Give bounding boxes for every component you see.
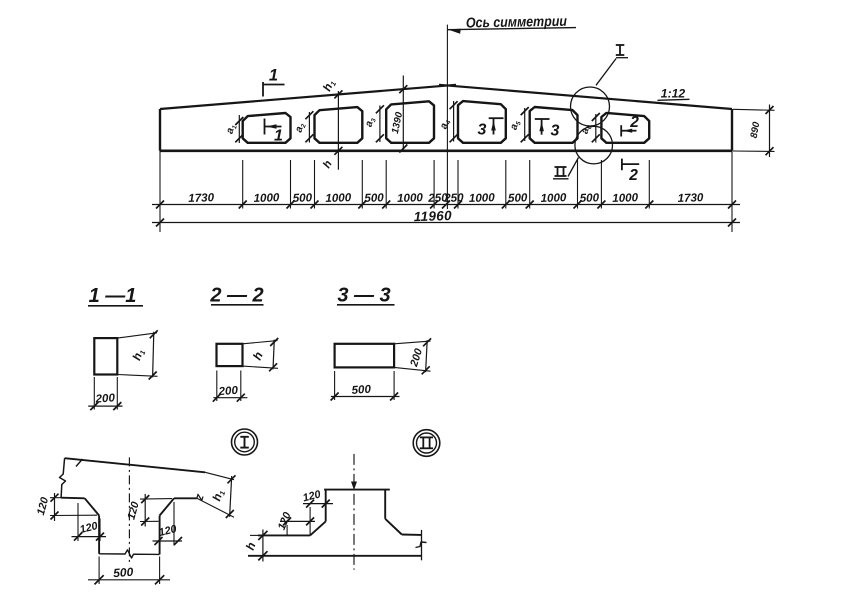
svg-text:120: 120 bbox=[125, 500, 141, 521]
svg-text:h1: h1 bbox=[211, 488, 227, 503]
svg-text:500: 500 bbox=[508, 191, 528, 205]
svg-text:1000: 1000 bbox=[540, 191, 567, 205]
svg-text:250: 250 bbox=[443, 191, 464, 205]
svg-text:Ось симметрии: Ось симметрии bbox=[466, 14, 568, 32]
svg-text:a4: a4 bbox=[438, 118, 452, 130]
svg-text:h: h bbox=[243, 540, 259, 552]
svg-text:1000: 1000 bbox=[397, 191, 424, 205]
svg-text:500: 500 bbox=[351, 384, 372, 397]
svg-text:500: 500 bbox=[579, 191, 599, 205]
svg-text:1730: 1730 bbox=[188, 191, 215, 205]
svg-text:3 — 3: 3 — 3 bbox=[337, 285, 390, 307]
svg-text:3: 3 bbox=[551, 123, 560, 140]
svg-text:a3: a3 bbox=[364, 116, 378, 128]
svg-text:1730: 1730 bbox=[677, 191, 704, 205]
svg-text:1000: 1000 bbox=[253, 191, 280, 205]
svg-text:11960: 11960 bbox=[413, 208, 452, 224]
svg-text:1: 1 bbox=[269, 67, 278, 85]
svg-text:2: 2 bbox=[629, 114, 639, 131]
svg-text:h: h bbox=[250, 350, 266, 363]
svg-text:1000: 1000 bbox=[612, 191, 639, 205]
svg-text:500: 500 bbox=[113, 565, 134, 580]
svg-text:1: 1 bbox=[274, 128, 283, 145]
svg-text:120: 120 bbox=[158, 523, 178, 539]
svg-text:890: 890 bbox=[749, 121, 763, 140]
svg-text:2: 2 bbox=[628, 167, 638, 184]
svg-text:h1: h1 bbox=[131, 348, 147, 363]
svg-text:h: h bbox=[321, 158, 335, 170]
svg-text:1000: 1000 bbox=[325, 191, 352, 205]
svg-text:500: 500 bbox=[292, 191, 312, 205]
svg-text:120: 120 bbox=[35, 496, 51, 517]
svg-text:1:12: 1:12 bbox=[661, 86, 686, 100]
svg-text:1 —1: 1 —1 bbox=[89, 285, 137, 307]
svg-text:120: 120 bbox=[79, 520, 99, 536]
svg-text:3: 3 bbox=[478, 122, 487, 139]
svg-text:1000: 1000 bbox=[469, 191, 496, 205]
svg-text:120: 120 bbox=[302, 488, 322, 504]
svg-text:120: 120 bbox=[276, 511, 294, 532]
svg-text:200: 200 bbox=[408, 347, 425, 369]
svg-text:2 — 2: 2 — 2 bbox=[209, 285, 263, 307]
svg-text:a6: a6 bbox=[580, 123, 594, 135]
svg-text:h1: h1 bbox=[322, 78, 339, 94]
svg-text:a5: a5 bbox=[509, 119, 523, 131]
svg-text:200: 200 bbox=[217, 385, 239, 398]
svg-text:500: 500 bbox=[364, 191, 384, 205]
svg-text:a2: a2 bbox=[294, 122, 308, 134]
svg-text:200: 200 bbox=[94, 392, 116, 405]
